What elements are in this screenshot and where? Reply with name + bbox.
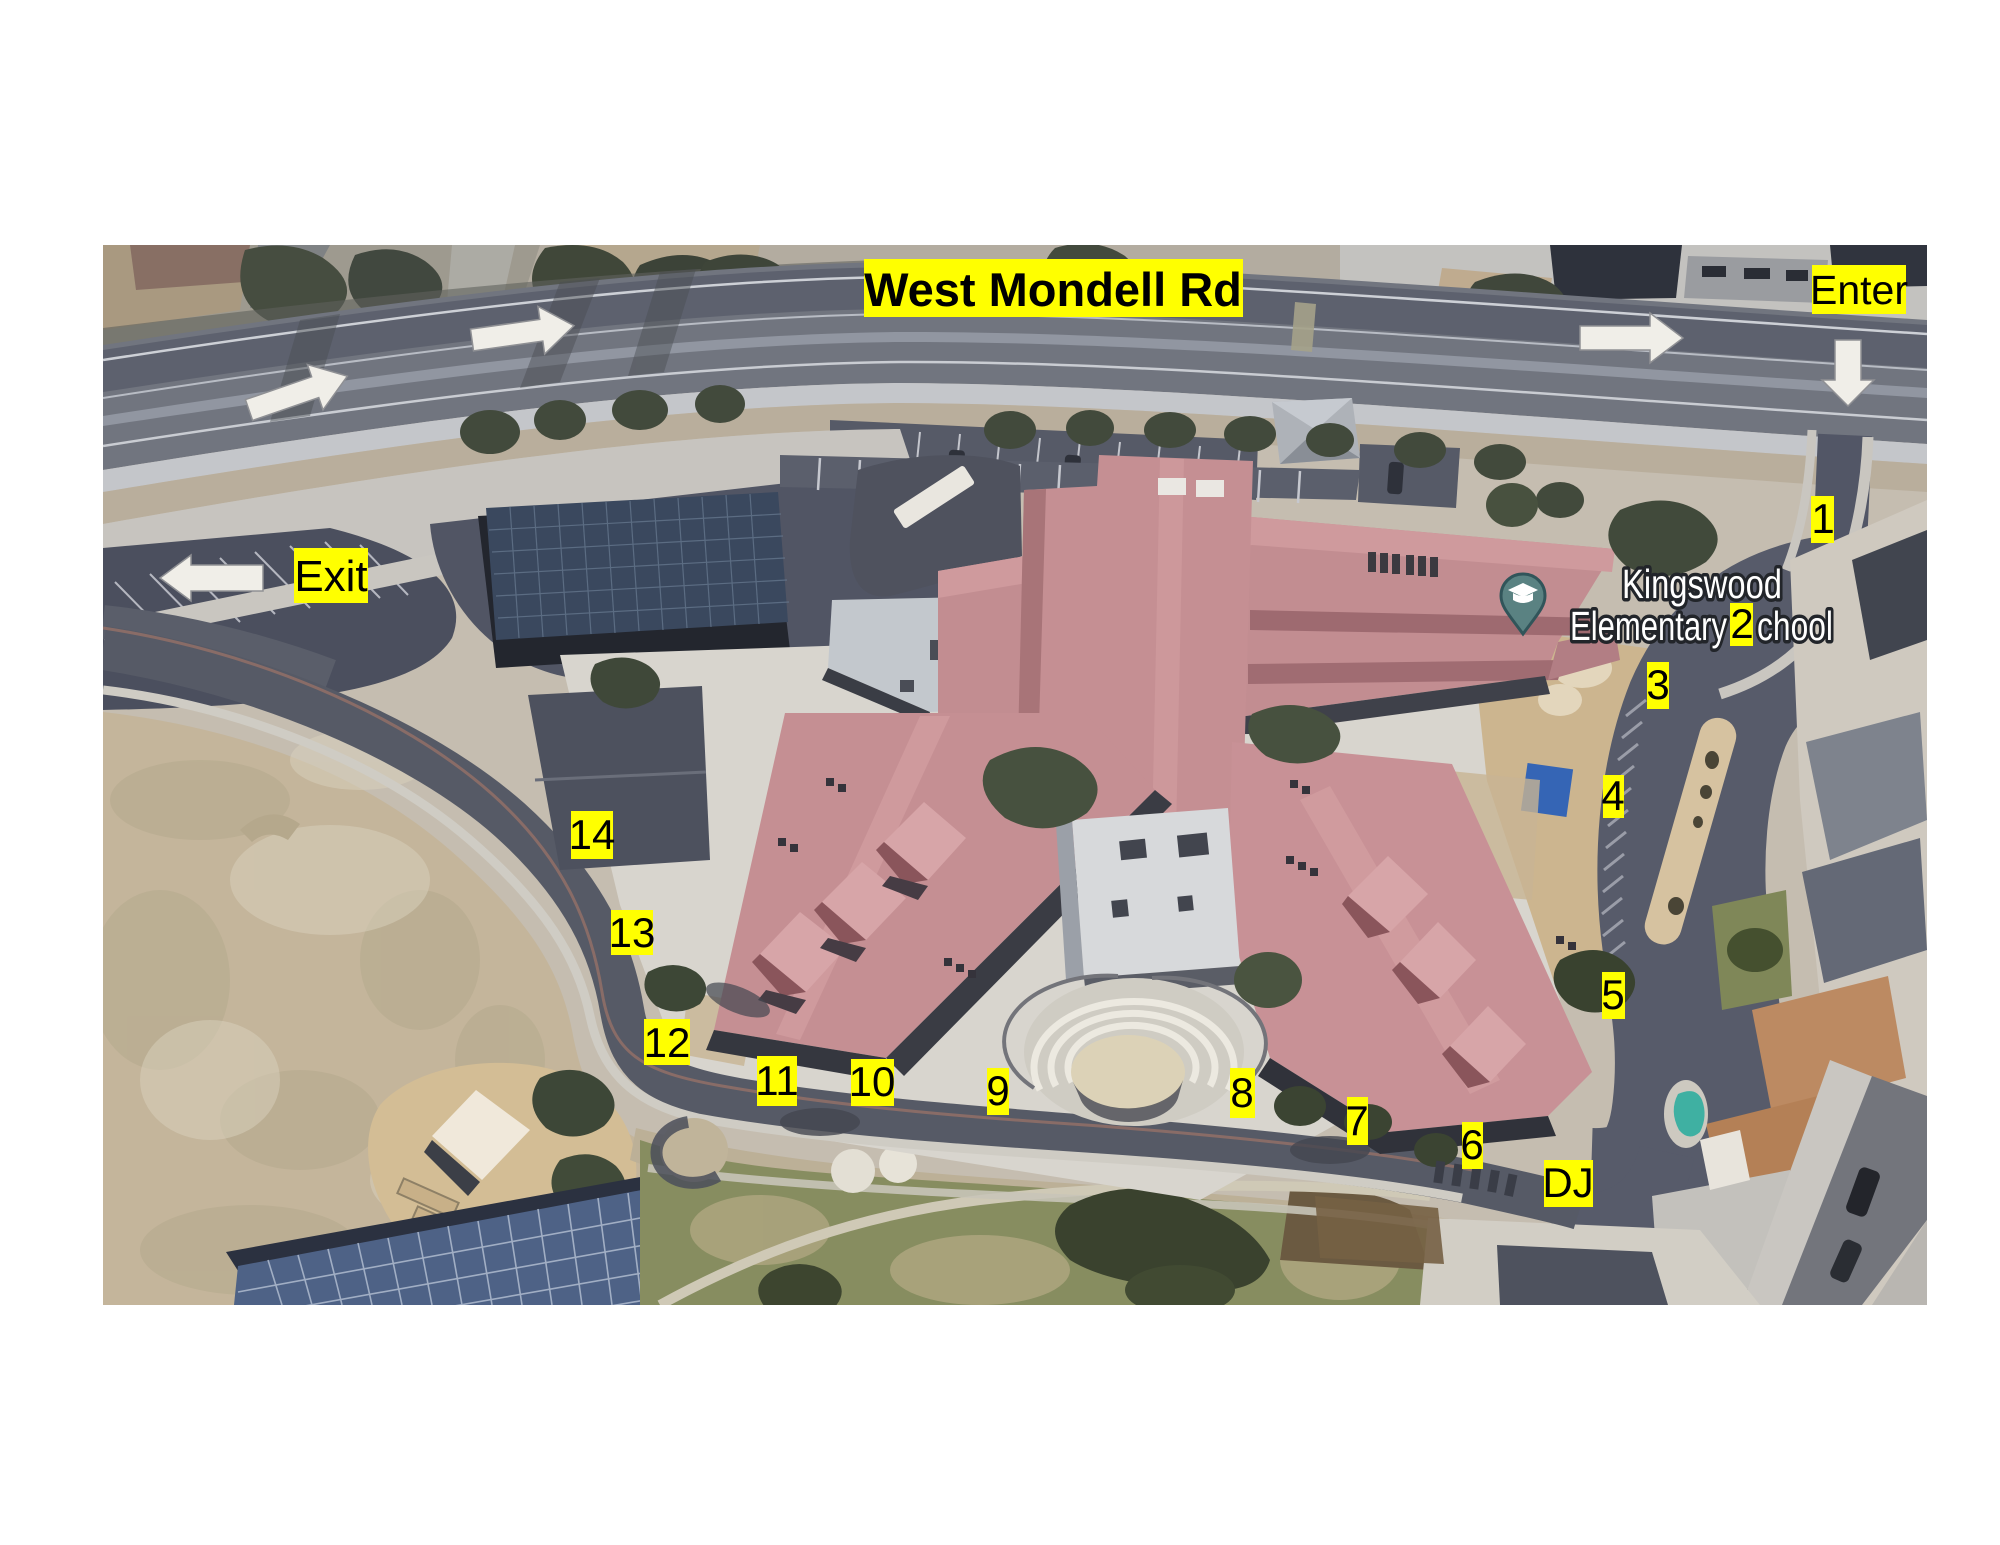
svg-text:8: 8 <box>1230 1069 1253 1116</box>
svg-text:Exit: Exit <box>294 552 367 601</box>
svg-text:11: 11 <box>755 1057 799 1104</box>
svg-text:1: 1 <box>1811 495 1834 542</box>
svg-text:Elementary: Elementary <box>1570 603 1727 649</box>
svg-text:Kingswood: Kingswood <box>1622 561 1782 607</box>
svg-text:6: 6 <box>1460 1121 1483 1168</box>
svg-text:DJ: DJ <box>1542 1159 1593 1206</box>
svg-text:3: 3 <box>1646 661 1669 708</box>
svg-text:12: 12 <box>644 1019 691 1066</box>
svg-text:9: 9 <box>986 1067 1009 1114</box>
svg-text:7: 7 <box>1345 1097 1368 1144</box>
svg-text:4: 4 <box>1601 772 1624 819</box>
svg-text:5: 5 <box>1601 971 1624 1018</box>
svg-text:13: 13 <box>609 909 656 956</box>
svg-text:14: 14 <box>569 811 616 858</box>
svg-text:10: 10 <box>849 1058 896 1105</box>
svg-text:chool: chool <box>1757 603 1833 649</box>
svg-text:2: 2 <box>1730 600 1753 647</box>
svg-text:West Mondell Rd: West Mondell Rd <box>864 263 1242 316</box>
svg-text:Enter: Enter <box>1810 267 1908 313</box>
